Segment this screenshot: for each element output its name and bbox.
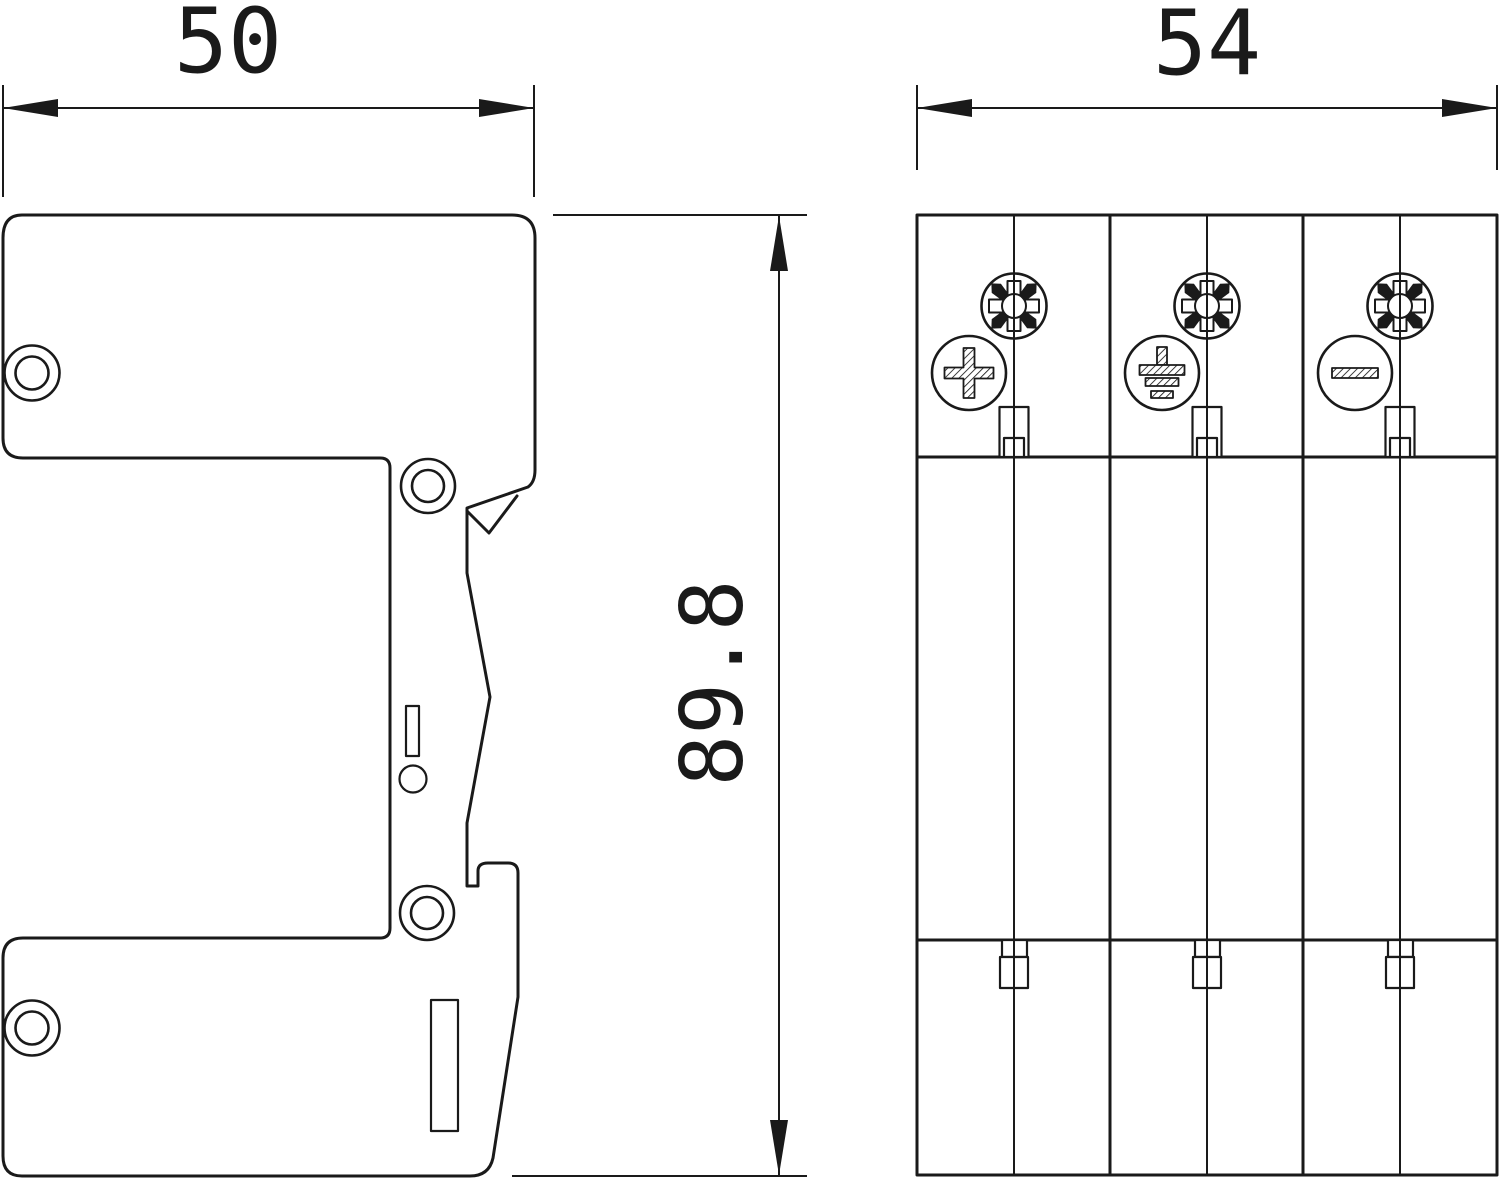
dimension-height: 89.8	[512, 215, 807, 1176]
plus-symbol-icon	[932, 336, 1006, 410]
side-body-outline	[3, 215, 535, 1176]
arrowhead-down-icon	[770, 1120, 788, 1175]
side-profile-view	[3, 215, 535, 1176]
minus-symbol-icon	[1318, 336, 1392, 410]
technical-drawing-canvas: 50 54 89.8	[0, 0, 1500, 1180]
height-value: 89.8	[663, 579, 763, 786]
drawing-svg: 50 54 89.8	[0, 0, 1500, 1180]
side-width-value: 50	[174, 0, 282, 94]
arrowhead-right-icon	[479, 99, 534, 117]
arrowhead-left-icon	[3, 99, 58, 117]
arrowhead-left-icon	[917, 99, 972, 117]
arrowhead-right-icon	[1442, 99, 1497, 117]
dimension-side-width: 50	[3, 0, 534, 197]
front-width-value: 54	[1153, 0, 1261, 96]
front-view	[917, 215, 1497, 1175]
dimension-front-width: 54	[917, 0, 1497, 170]
earth-ground-symbol-icon	[1125, 336, 1199, 410]
arrowhead-up-icon	[770, 216, 788, 271]
